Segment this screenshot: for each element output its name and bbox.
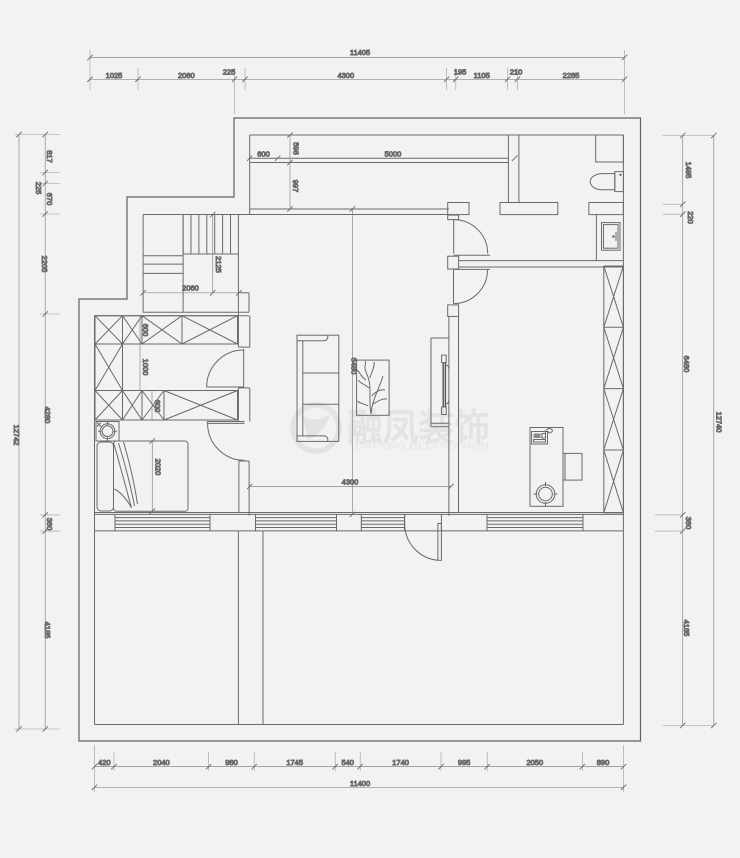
- svg-text:420: 420: [98, 758, 111, 767]
- svg-text:210: 210: [510, 68, 523, 77]
- svg-text:225: 225: [223, 68, 236, 77]
- svg-text:2125: 2125: [214, 256, 223, 273]
- svg-text:670: 670: [45, 193, 54, 206]
- svg-text:1025: 1025: [106, 71, 123, 80]
- svg-text:540: 540: [341, 758, 354, 767]
- svg-text:600: 600: [153, 400, 162, 413]
- svg-text:4300: 4300: [337, 71, 354, 80]
- svg-text:4185: 4185: [682, 620, 691, 637]
- svg-text:11405: 11405: [350, 48, 370, 57]
- svg-text:12740: 12740: [715, 412, 724, 433]
- svg-text:5000: 5000: [385, 150, 402, 159]
- svg-text:995: 995: [458, 758, 471, 767]
- svg-text:600: 600: [257, 150, 270, 159]
- svg-text:2205: 2205: [40, 256, 49, 273]
- svg-text:4300: 4300: [342, 477, 359, 486]
- svg-text:360: 360: [45, 518, 54, 531]
- svg-text:195: 195: [454, 68, 467, 77]
- svg-text:2060: 2060: [178, 71, 195, 80]
- svg-text:360: 360: [684, 517, 693, 530]
- svg-text:890: 890: [597, 758, 610, 767]
- svg-text:2020: 2020: [153, 459, 162, 476]
- svg-text:1740: 1740: [392, 758, 409, 767]
- svg-text:225: 225: [34, 182, 43, 195]
- svg-text:11400: 11400: [350, 779, 370, 788]
- svg-text:2050: 2050: [526, 758, 543, 767]
- svg-text:6480: 6480: [682, 356, 691, 373]
- svg-text:598: 598: [292, 142, 301, 155]
- svg-text:220: 220: [686, 211, 695, 224]
- svg-text:600: 600: [141, 324, 150, 337]
- svg-text:980: 980: [225, 758, 238, 767]
- svg-text:817: 817: [45, 150, 54, 163]
- svg-text:12742: 12742: [12, 425, 21, 446]
- svg-text:1105: 1105: [474, 71, 490, 80]
- svg-text:1000: 1000: [141, 359, 150, 376]
- svg-text:1495: 1495: [684, 162, 693, 179]
- svg-text:4185: 4185: [43, 622, 52, 639]
- svg-text:4280: 4280: [43, 407, 52, 424]
- svg-text:DAFENG DECORATION: DAFENG DECORATION: [355, 441, 489, 451]
- svg-text:2285: 2285: [563, 71, 580, 80]
- svg-text:997: 997: [291, 180, 300, 193]
- svg-text:2040: 2040: [153, 758, 170, 767]
- svg-text:1745: 1745: [286, 758, 303, 767]
- svg-text:2060: 2060: [182, 284, 199, 293]
